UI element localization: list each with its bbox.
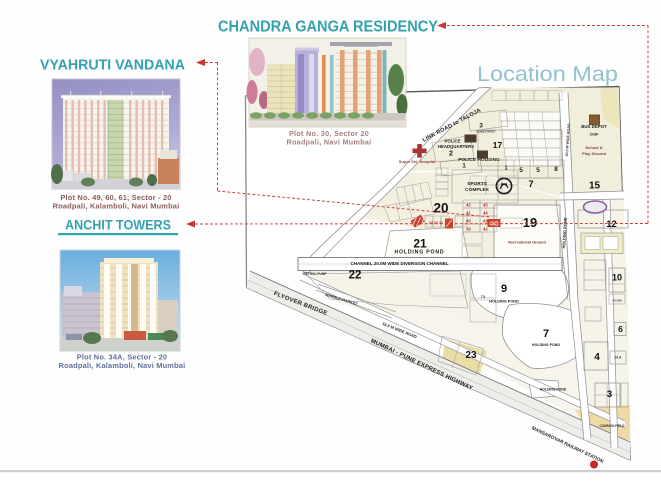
svg-text:CHANNEL 20.0M WIDE DIVERSION C: CHANNEL 20.0M WIDE DIVERSION CHANNEL	[351, 261, 449, 266]
svg-text:HOLDING POND: HOLDING POND	[489, 300, 519, 304]
svg-text:COMMON FIELD: COMMON FIELD	[600, 424, 626, 428]
svg-text:HOLDING POND: HOLDING POND	[532, 343, 560, 347]
svg-text:22: 22	[349, 270, 362, 282]
svg-text:45: 45	[483, 203, 488, 208]
svg-text:HOLDING POND: HOLDING POND	[395, 250, 445, 256]
svg-text:Super Sel. Hospital: Super Sel. Hospital	[399, 159, 435, 164]
svg-text:46B: 46B	[489, 221, 499, 227]
svg-text:7: 7	[528, 179, 533, 189]
svg-text:Roadpali, Kalamboli, Navi Mumb: Roadpali, Kalamboli, Navi Mumbai	[59, 361, 186, 370]
svg-text:SOMESTREET: SOMESTREET	[476, 130, 496, 134]
svg-text:20: 20	[433, 201, 448, 216]
svg-text:21: 21	[413, 237, 427, 251]
svg-text:23: 23	[465, 350, 477, 361]
svg-text:73: 73	[481, 294, 486, 299]
svg-text:12: 12	[606, 219, 617, 230]
svg-text:1: 1	[504, 166, 507, 172]
svg-text:School &: School &	[585, 145, 602, 150]
svg-text:2: 2	[449, 151, 453, 158]
svg-text:19: 19	[523, 215, 537, 230]
svg-text:Roadpali, Kalamboli, Navi Mumb: Roadpali, Kalamboli, Navi Mumbai	[53, 202, 180, 211]
svg-text:4: 4	[594, 352, 600, 363]
svg-text:19 A: 19 A	[614, 356, 622, 360]
svg-text:HOLDING POND: HOLDING POND	[540, 388, 567, 392]
svg-text:15: 15	[589, 181, 601, 192]
svg-text:7: 7	[543, 328, 549, 340]
svg-text:39: 39	[466, 227, 471, 232]
svg-text:8: 8	[554, 166, 558, 173]
svg-text:SPORTS: SPORTS	[467, 181, 488, 187]
svg-text:POLICE: POLICE	[445, 139, 461, 144]
svg-text:GUARD: GUARD	[612, 299, 622, 303]
svg-text:ANCHIT TOWERS: ANCHIT TOWERS	[65, 217, 171, 233]
svg-text:Roadpali, Navi Mumbai: Roadpali, Navi Mumbai	[287, 138, 372, 147]
svg-text:17: 17	[493, 140, 503, 150]
svg-text:VYAHRUTI VANDANA: VYAHRUTI VANDANA	[40, 57, 185, 74]
svg-text:PETROL PUMP: PETROL PUMP	[304, 272, 328, 276]
svg-text:10: 10	[612, 273, 622, 283]
svg-text:5: 5	[536, 167, 540, 174]
svg-text:Play Ground: Play Ground	[582, 151, 606, 156]
svg-text:HEADQUARTERS: HEADQUARTERS	[438, 144, 474, 149]
svg-text:5: 5	[519, 167, 523, 174]
svg-text:6: 6	[618, 324, 623, 334]
svg-text:3: 3	[607, 389, 612, 400]
svg-text:CHANDRA GANGA RESIDENCY: CHANDRA GANGA RESIDENCY	[218, 19, 438, 36]
svg-text:9: 9	[501, 283, 507, 295]
svg-text:43: 43	[483, 219, 488, 224]
svg-text:Location Map: Location Map	[477, 63, 618, 86]
svg-text:BUS DEPOT: BUS DEPOT	[581, 124, 607, 129]
svg-text:44: 44	[483, 211, 488, 216]
svg-text:COMPLEX: COMPLEX	[465, 187, 490, 193]
svg-text:33 32 31: 33 32 31	[429, 221, 443, 225]
svg-text:42: 42	[483, 227, 488, 232]
svg-text:3: 3	[479, 123, 483, 130]
svg-text:POLICE HOUSING: POLICE HOUSING	[458, 157, 500, 163]
svg-text:40: 40	[466, 219, 471, 224]
svg-text:CISF: CISF	[590, 133, 599, 137]
svg-text:Recreational Ground: Recreational Ground	[508, 241, 546, 245]
svg-text:42: 42	[466, 203, 471, 208]
